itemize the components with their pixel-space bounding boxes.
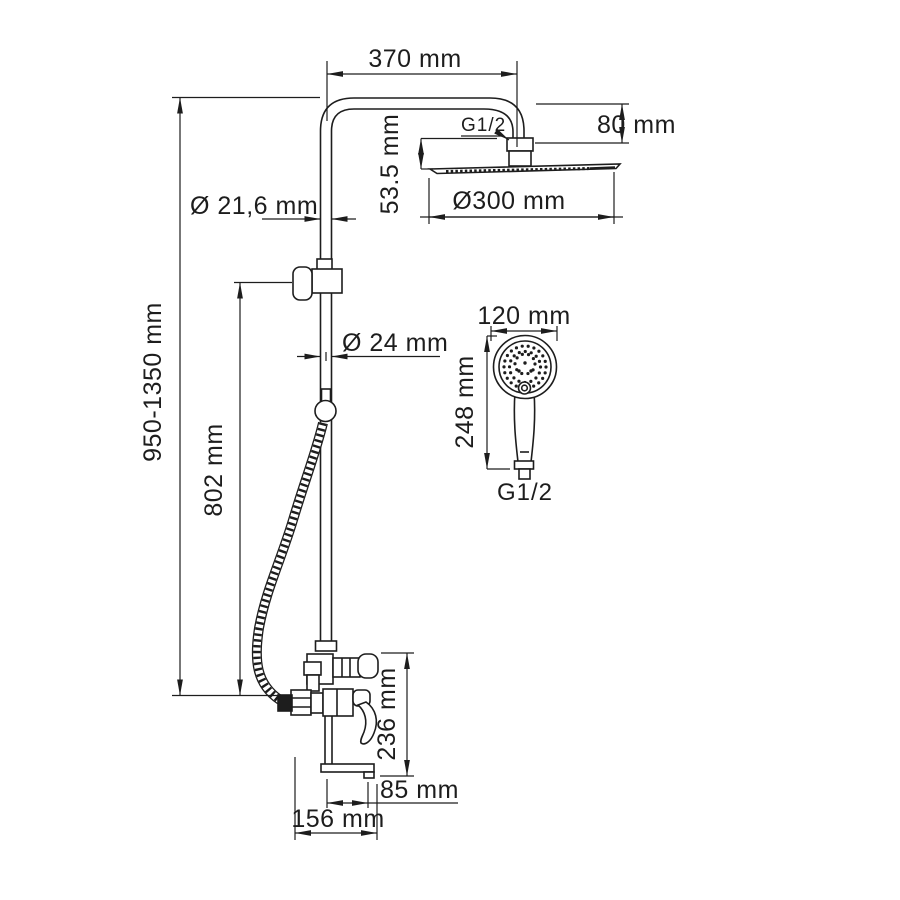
mixer-body	[323, 689, 353, 716]
arm-thread-label: G1/2	[461, 115, 506, 136]
hose-elbow	[304, 662, 321, 675]
head-stem	[509, 151, 531, 166]
diverter-branch	[333, 658, 360, 677]
dim-mixer-height-label: 236 mm	[373, 667, 401, 760]
mixer-assembly	[278, 641, 378, 778]
handshower-thread-label: G1/2	[497, 479, 553, 506]
dim-spout-reach: 85 mm	[327, 776, 459, 808]
hand-shower	[494, 336, 557, 480]
dim-spout-reach-label: 85 mm	[380, 776, 459, 804]
dim-handshower-height-label: 248 mm	[451, 355, 479, 448]
dim-top-width-label: 370 mm	[368, 45, 461, 73]
dim-head-height: 80 mm	[535, 104, 676, 143]
dim-mixer-height: 236 mm	[373, 653, 414, 776]
dim-head-diameter: Ø300 mm	[420, 172, 623, 224]
dim-overall-height-label: 950-1350 mm	[139, 302, 167, 462]
arm-connector-nut	[507, 138, 533, 151]
hand-shower-connector	[519, 469, 530, 479]
wall-bracket	[293, 259, 342, 300]
dim-head-diameter-label: Ø300 mm	[452, 187, 565, 215]
dim-lower-pipe-label: Ø 24 mm	[342, 329, 448, 357]
dim-lower-pipe-diameter: Ø 24 mm	[297, 329, 448, 361]
drawing-canvas: 370 mm 80 mm G1/2 53.5 mm Ø300 mm	[0, 0, 900, 900]
pipe-collar	[316, 641, 337, 651]
dim-upper-pipe-label: Ø 21,6 mm	[190, 192, 318, 220]
diverter-slider	[315, 389, 336, 422]
dim-handshower-width-label: 120 mm	[477, 302, 570, 330]
wall-flange	[293, 267, 312, 300]
dim-bracket-height-label: 802 mm	[200, 423, 228, 516]
hose-connector	[278, 695, 292, 711]
hose-nut	[291, 690, 311, 715]
mode-button	[519, 382, 531, 394]
shower-system-technical-drawing: 370 mm 80 mm G1/2 53.5 mm Ø300 mm	[0, 0, 900, 900]
dim-overall-height: 950-1350 mm	[139, 98, 320, 696]
dim-bracket-height: 802 mm	[200, 283, 292, 696]
mixer-shelf	[321, 764, 374, 772]
dim-head-offset-label: 53.5 mm	[376, 114, 404, 215]
dim-head-height-label: 80 mm	[597, 111, 676, 139]
label-handshower-thread: G1/2	[497, 479, 553, 506]
dim-mixer-width-label: 156 mm	[291, 805, 384, 833]
label-arm-thread: G1/2	[461, 115, 509, 140]
